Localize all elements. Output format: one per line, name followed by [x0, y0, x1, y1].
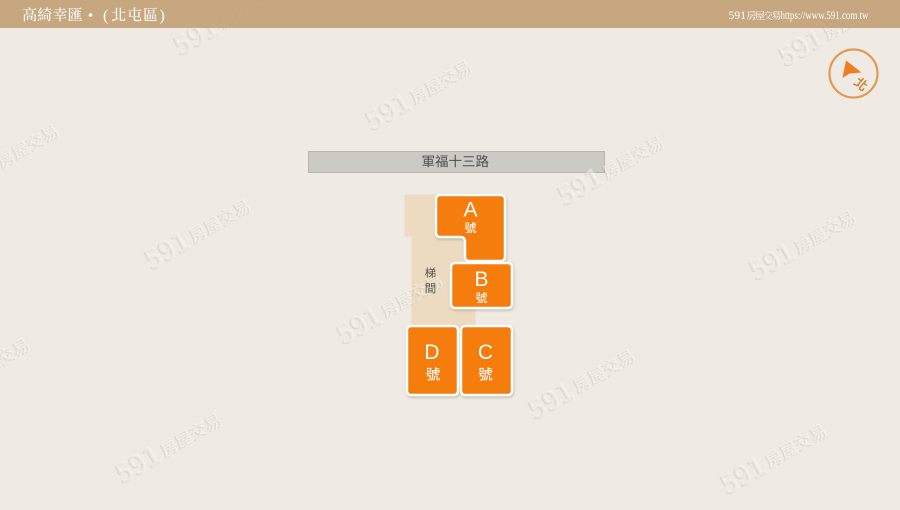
svg-text:C: C: [478, 341, 493, 364]
svg-text:(: (: [103, 8, 108, 25]
svg-text:): ): [160, 8, 165, 25]
svg-text:B: B: [474, 268, 488, 291]
svg-text:https://www.591.com.tw: https://www.591.com.tw: [781, 10, 870, 22]
svg-text:591: 591: [729, 10, 747, 22]
svg-text:D: D: [424, 341, 439, 364]
svg-text:A: A: [463, 198, 477, 221]
